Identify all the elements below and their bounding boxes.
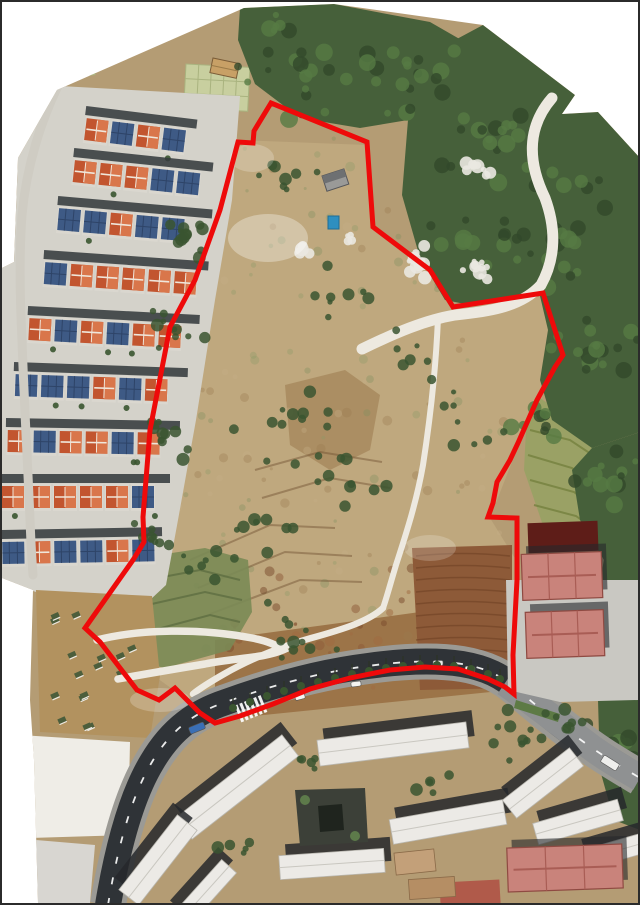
aerial-orthophoto-page bbox=[0, 0, 640, 905]
aerial-orthophoto-map bbox=[0, 0, 640, 905]
